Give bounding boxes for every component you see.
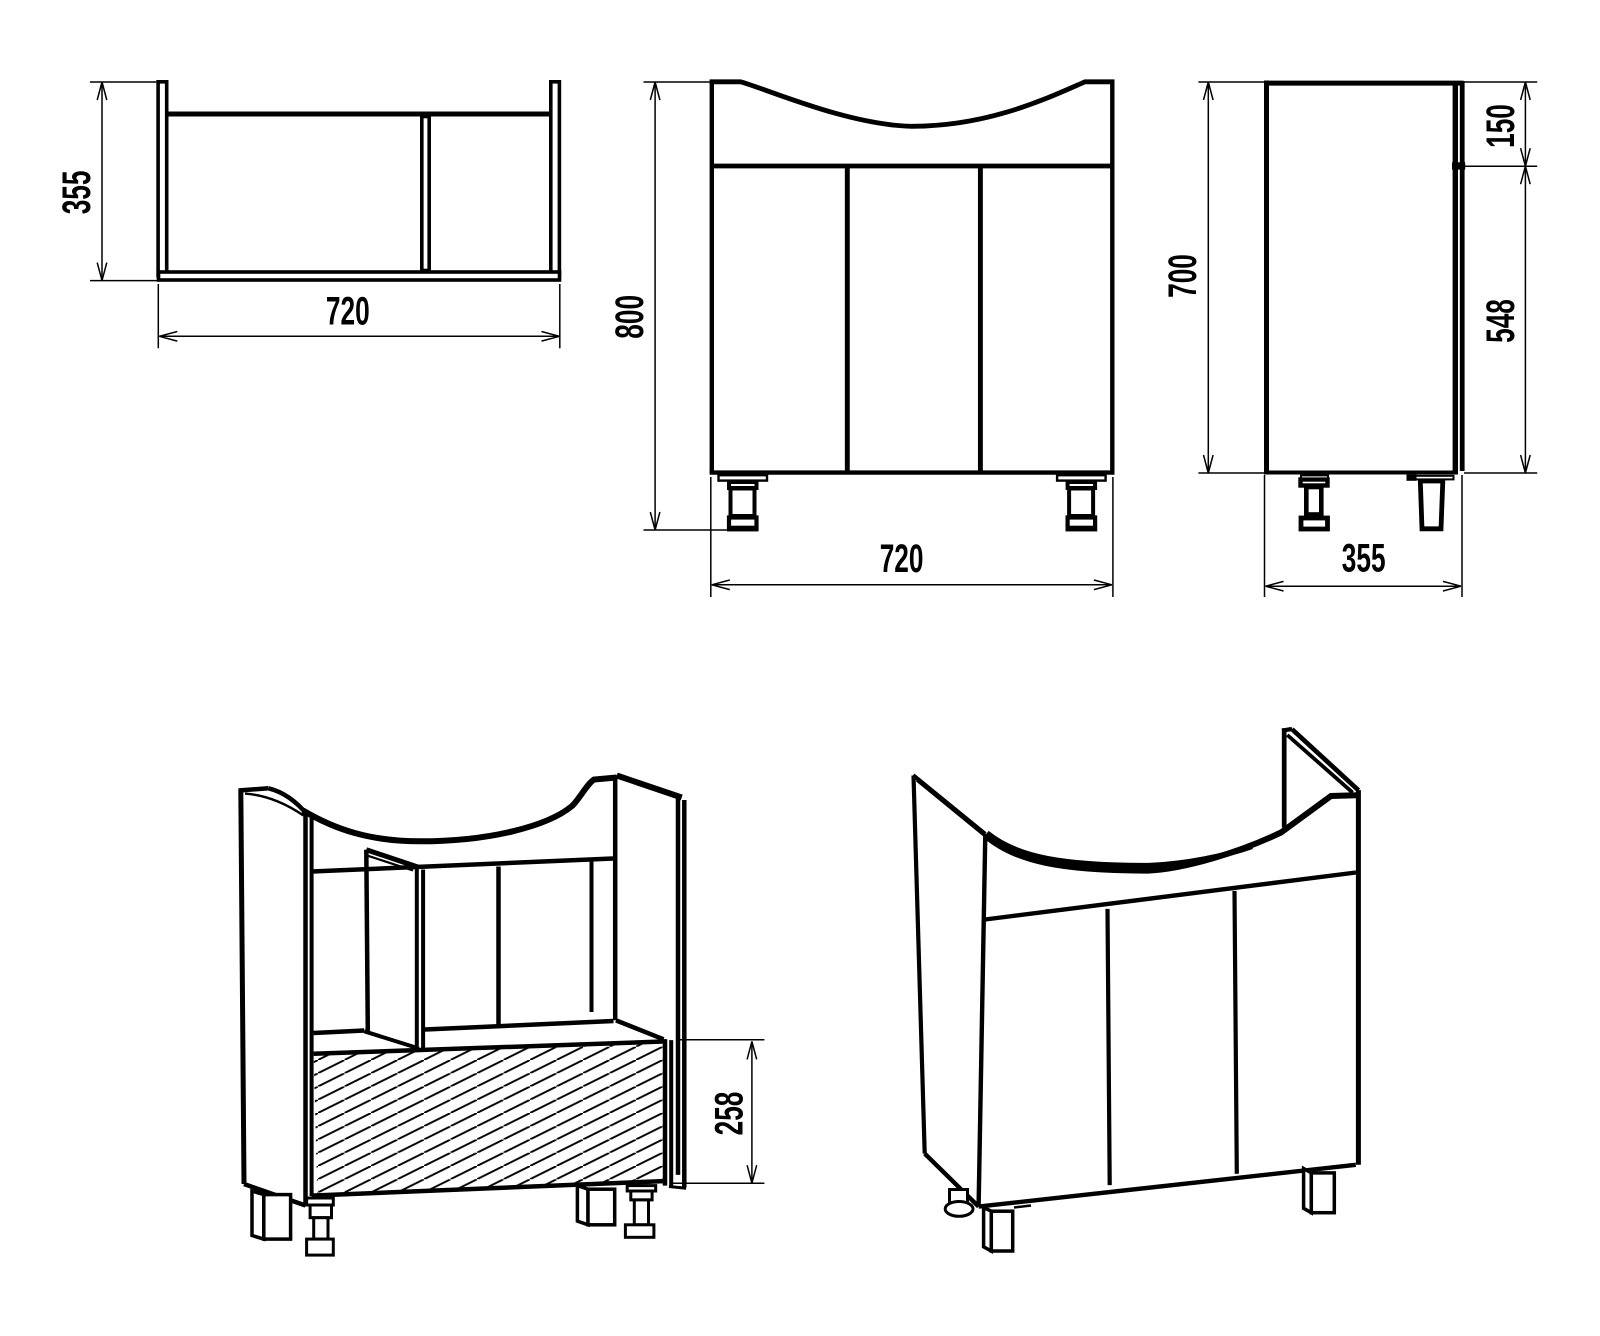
svg-text:720: 720 — [880, 536, 924, 581]
svg-text:548: 548 — [1478, 299, 1523, 343]
svg-text:800: 800 — [607, 295, 652, 339]
svg-text:355: 355 — [54, 170, 99, 214]
svg-text:355: 355 — [1342, 536, 1386, 581]
svg-text:258: 258 — [707, 1092, 752, 1136]
svg-text:150: 150 — [1479, 104, 1524, 148]
svg-text:720: 720 — [326, 289, 370, 334]
svg-text:700: 700 — [1160, 254, 1205, 298]
